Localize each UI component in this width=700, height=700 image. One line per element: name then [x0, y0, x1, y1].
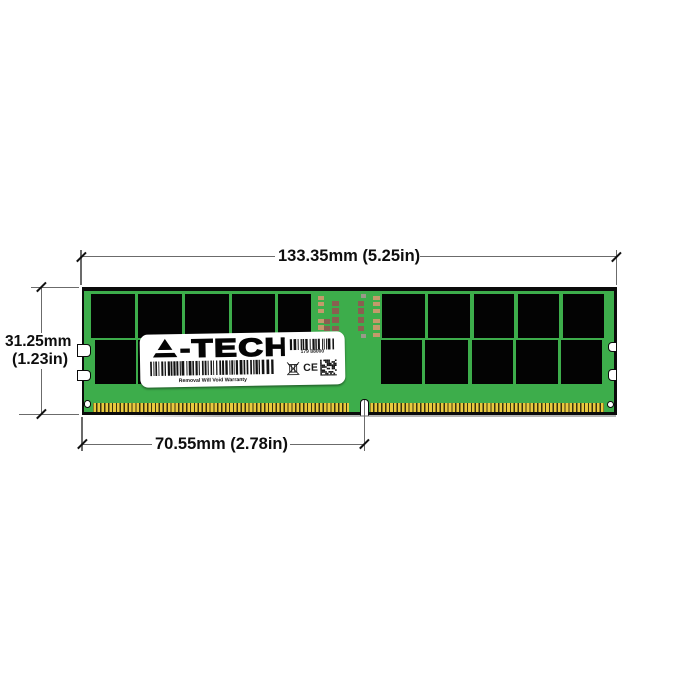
svg-text:TECH: TECH [192, 336, 285, 359]
